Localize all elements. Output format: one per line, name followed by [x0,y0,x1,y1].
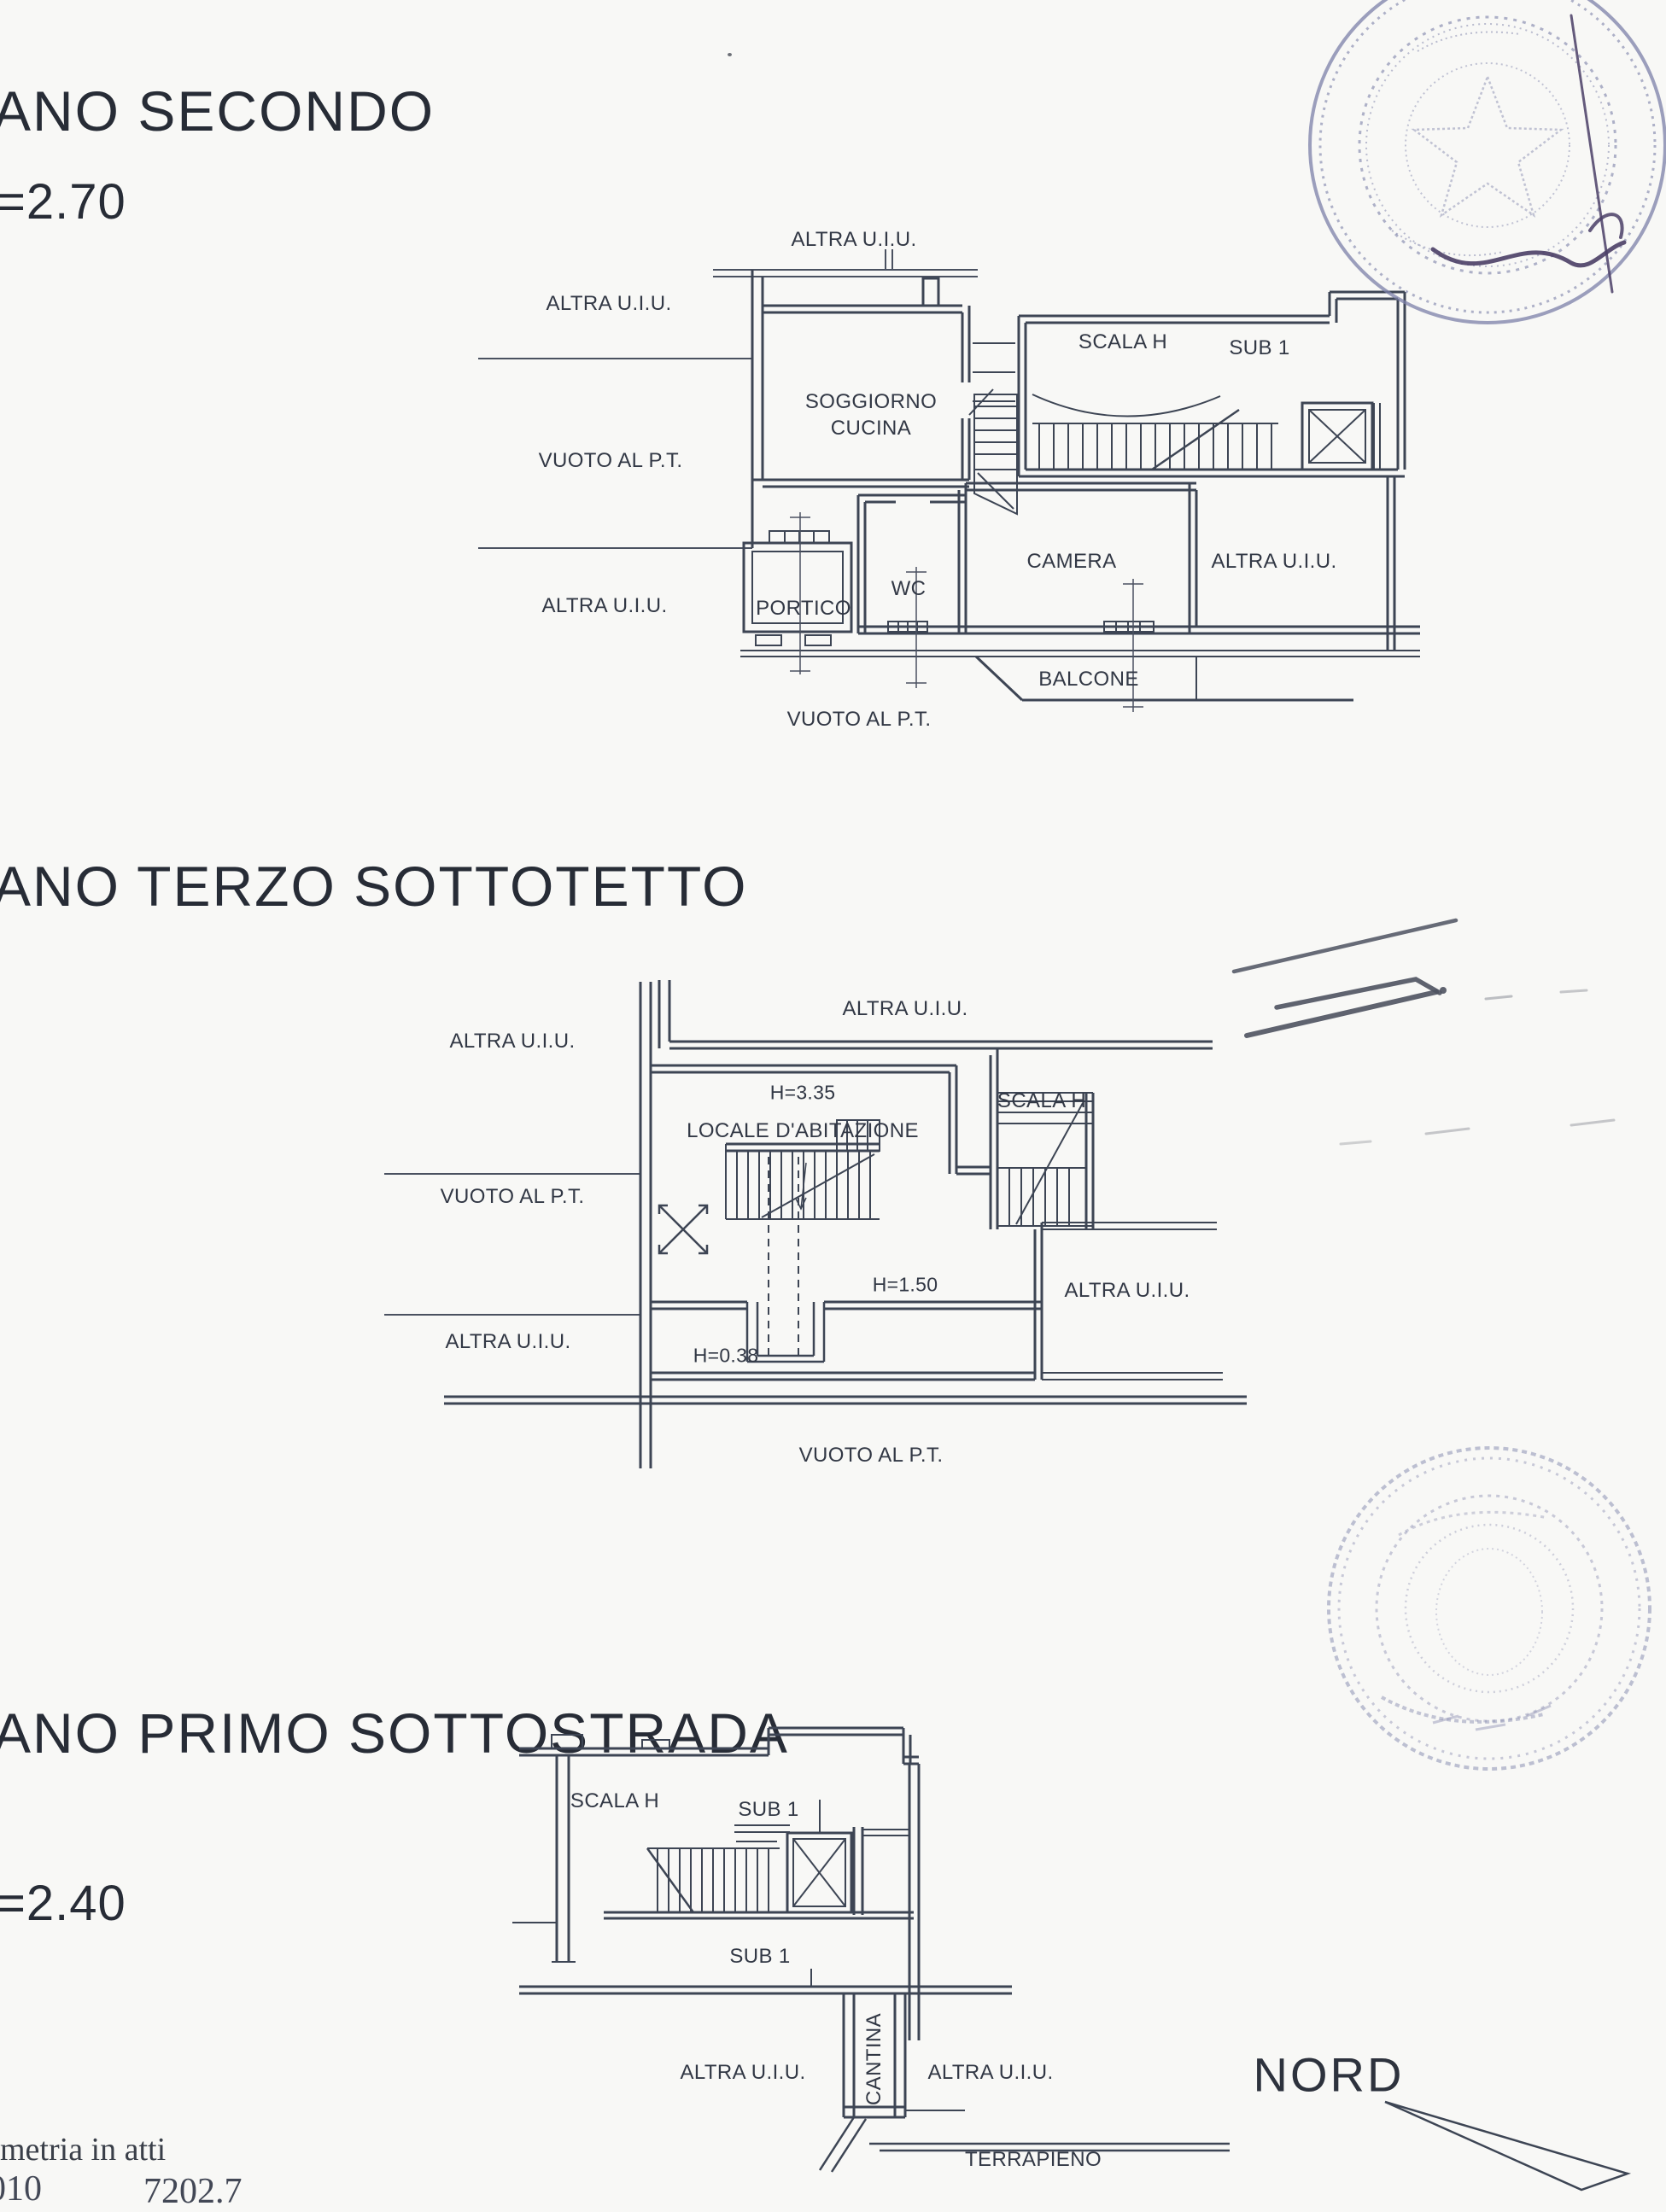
footer-note: metria in atti [0,2131,166,2168]
height-label-h150: H=1.50 [873,1274,938,1297]
area-label-terrapieno: TERRAPIENO [965,2148,1102,2172]
footer-fragment-right: 7202.7 [143,2171,243,2212]
signature-scribble [1433,242,1624,266]
room-label-scala-h: SCALA H [997,1089,1086,1113]
room-label-scala-h: SCALA H [570,1789,659,1813]
boundary-label-vuoto: VUOTO AL P.T. [787,708,932,732]
room-label-scala-h: SCALA H [1079,330,1167,354]
room-label-line: SOGGIORNO [805,388,937,415]
room-label-balcone: BALCONE [1038,668,1139,692]
room-label-sub1: SUB 1 [738,1798,798,1822]
north-arrow-icon [1366,2083,1657,2190]
room-label-sub1: SUB 1 [729,1945,790,1969]
footer-fragment-left: 010 [0,2168,42,2209]
boundary-label-altra-uiu: ALTRA U.I.U. [680,2061,805,2085]
faded-round-stamp [1322,1441,1663,1783]
height-note-primo: =2.40 [0,1875,126,1932]
room-label-line: CUCINA [805,415,937,441]
boundary-label-vuoto: VUOTO AL P.T. [799,1444,944,1468]
boundary-label-altra-uiu: ALTRA U.I.U. [541,594,667,618]
plan-title-secondo: ANO SECONDO [0,79,435,143]
room-label-cantina: CANTINA [862,2013,886,2105]
boundary-label-altra-uiu: ALTRA U.I.U. [791,228,916,252]
room-label-sub1: SUB 1 [1229,336,1289,360]
boundary-label-vuoto: VUOTO AL P.T. [539,449,683,473]
boundary-label-altra-uiu: ALTRA U.I.U. [842,997,967,1021]
height-label-h335: H=3.35 [770,1082,836,1105]
floor-plan-primo-drawing [512,1716,1230,2194]
room-label-portico: PORTICO [756,597,851,621]
room-label-locale-abitazione: LOCALE D'ABITAZIONE [687,1119,919,1143]
boundary-label-vuoto: VUOTO AL P.T. [441,1185,585,1209]
scan-speck [728,53,732,56]
boundary-label-altra-uiu: ALTRA U.I.U. [1064,1279,1190,1303]
boundary-label-altra-uiu: ALTRA U.I.U. [1211,550,1336,574]
room-label-soggiorno-cucina: SOGGIORNO CUCINA [805,388,937,441]
boundary-label-altra-uiu: ALTRA U.I.U. [449,1030,575,1053]
scanned-floor-plan-page: ANO SECONDO =2.70 [0,0,1666,2186]
boundary-label-altra-uiu: ALTRA U.I.U. [927,2061,1053,2085]
boundary-label-altra-uiu: ALTRA U.I.U. [445,1330,570,1354]
boundary-label-altra-uiu: ALTRA U.I.U. [546,292,671,316]
height-label-h038: H=0.38 [693,1345,759,1368]
room-label-wc: WC [891,577,927,601]
official-round-stamp [1289,0,1666,350]
room-label-camera: CAMERA [1026,550,1116,574]
plan-title-terzo: ANO TERZO SOTTOTETTO [0,854,747,919]
height-note-secondo: =2.70 [0,173,126,231]
